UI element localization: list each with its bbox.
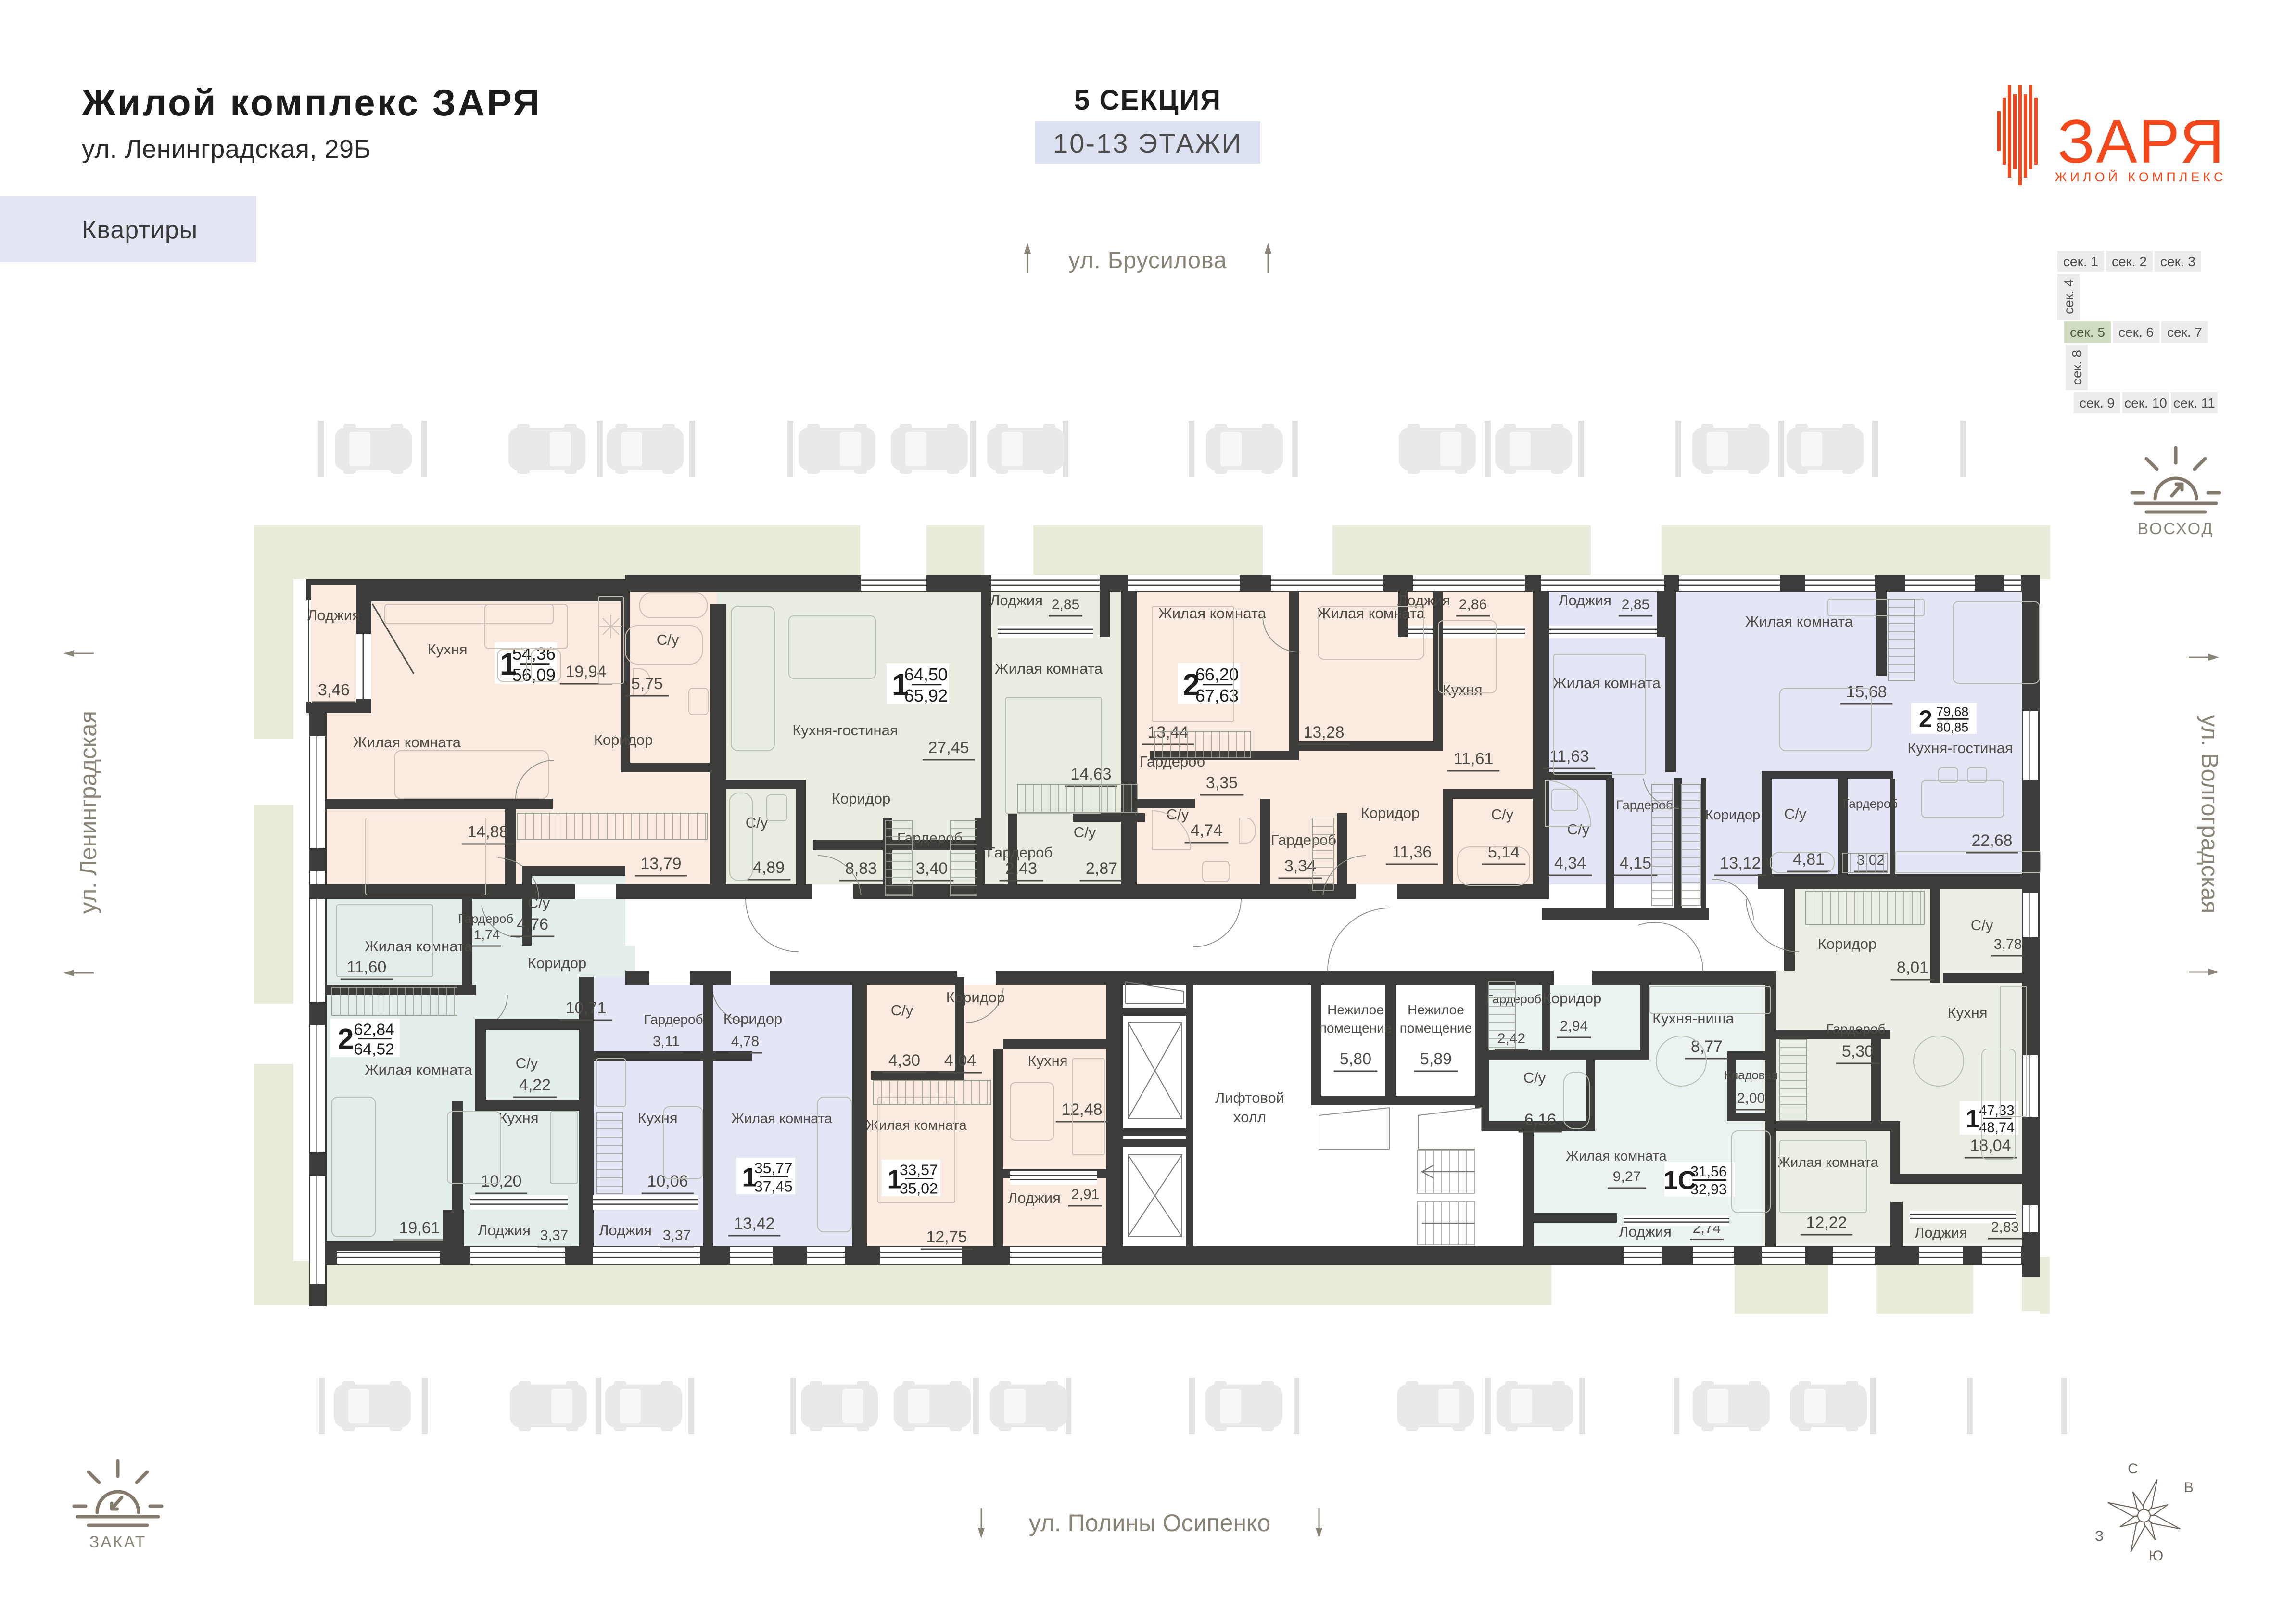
svg-text:66,20: 66,20 (1195, 665, 1239, 684)
svg-text:Коридор: Коридор (946, 989, 1005, 1006)
svg-text:2,86: 2,86 (1459, 597, 1487, 613)
svg-text:3,78: 3,78 (1994, 936, 2022, 952)
svg-text:Нежилое: Нежилое (1327, 1002, 1384, 1017)
svg-text:67,63: 67,63 (1195, 686, 1239, 705)
svg-text:Кухня-гостиная: Кухня-гостиная (1907, 740, 2013, 756)
svg-text:Жилая комната: Жилая комната (1566, 1149, 1667, 1164)
svg-text:14,88: 14,88 (467, 823, 508, 841)
svg-text:5,80: 5,80 (1340, 1050, 1371, 1068)
svg-text:Жилая комната: Жилая комната (995, 660, 1103, 677)
svg-text:27,45: 27,45 (928, 739, 969, 757)
svg-text:10-13 ЭТАЖИ: 10-13 ЭТАЖИ (1053, 128, 1243, 158)
svg-text:Гардероб: Гардероб (1843, 796, 1898, 811)
svg-text:3,02: 3,02 (1857, 852, 1885, 868)
svg-text:14,63: 14,63 (1070, 765, 1111, 783)
svg-text:С/у: С/у (528, 895, 550, 911)
svg-text:ул. Ленинградская, 29Б: ул. Ленинградская, 29Б (82, 135, 371, 164)
svg-text:Жилая комната: Жилая комната (365, 1061, 473, 1078)
svg-text:65,92: 65,92 (904, 686, 948, 705)
svg-text:С/у: С/у (516, 1055, 538, 1072)
svg-text:Коридор: Коридор (1543, 990, 1601, 1007)
svg-text:Жилая комната: Жилая комната (1158, 605, 1267, 622)
svg-text:Жилая комната: Жилая комната (1317, 605, 1425, 622)
svg-text:48,74: 48,74 (1979, 1120, 2015, 1136)
svg-text:11,63: 11,63 (1549, 747, 1589, 766)
svg-text:4,78: 4,78 (731, 1034, 759, 1049)
svg-text:С: С (2128, 1461, 2138, 1477)
svg-text:37,45: 37,45 (754, 1178, 793, 1195)
svg-text:2,43: 2,43 (1005, 859, 1037, 878)
svg-text:12,48: 12,48 (1061, 1100, 1102, 1119)
svg-text:Лоджия: Лоджия (307, 607, 360, 624)
svg-text:Жилая комната: Жилая комната (365, 938, 473, 955)
svg-text:С/у: С/у (1971, 917, 1993, 933)
svg-text:1: 1 (1966, 1105, 1979, 1133)
svg-text:Лоджия: Лоджия (990, 592, 1043, 609)
svg-text:18,04: 18,04 (1970, 1137, 2011, 1155)
svg-text:С/у: С/у (657, 631, 679, 648)
svg-text:4,74: 4,74 (1191, 821, 1222, 840)
svg-text:Лоджия: Лоджия (478, 1222, 531, 1239)
svg-text:С/у: С/у (1491, 806, 1514, 823)
svg-text:С/у: С/у (1523, 1069, 1546, 1086)
svg-text:6,16: 6,16 (1524, 1111, 1556, 1129)
svg-text:2,91: 2,91 (1071, 1187, 1099, 1202)
svg-text:Коридор: Коридор (723, 1010, 782, 1027)
svg-text:54,36: 54,36 (512, 644, 556, 664)
svg-text:15,68: 15,68 (1846, 683, 1887, 701)
svg-text:2,85: 2,85 (1052, 597, 1079, 613)
svg-text:62,84: 62,84 (354, 1021, 394, 1039)
svg-text:19,94: 19,94 (565, 663, 606, 681)
svg-text:3,37: 3,37 (540, 1228, 568, 1243)
svg-text:4,34: 4,34 (1554, 854, 1586, 872)
svg-text:13,44: 13,44 (1147, 723, 1188, 742)
svg-text:11,36: 11,36 (1392, 843, 1432, 861)
svg-text:12,75: 12,75 (926, 1228, 967, 1246)
svg-text:ЗАРЯ: ЗАРЯ (2057, 107, 2226, 176)
svg-text:4,30: 4,30 (888, 1051, 920, 1070)
svg-text:35,77: 35,77 (754, 1159, 793, 1176)
svg-text:сек. 11: сек. 11 (2173, 396, 2215, 410)
svg-text:13,42: 13,42 (734, 1215, 774, 1233)
svg-text:сек. 7: сек. 7 (2167, 325, 2202, 340)
svg-text:5 СЕКЦИЯ: 5 СЕКЦИЯ (1074, 85, 1221, 116)
svg-text:3,46: 3,46 (318, 681, 350, 699)
svg-text:Гардероб: Гардероб (458, 911, 513, 926)
svg-text:Гардероб: Гардероб (987, 844, 1053, 861)
svg-text:Кладовая: Кладовая (1724, 1069, 1778, 1082)
svg-text:Гардероб: Гардероб (1616, 798, 1674, 812)
svg-text:10,71: 10,71 (565, 999, 606, 1017)
svg-text:2,87: 2,87 (1086, 859, 1117, 878)
svg-text:сек. 8: сек. 8 (2069, 350, 2084, 385)
svg-text:Лоджия: Лоджия (1559, 592, 1611, 609)
svg-text:5,89: 5,89 (1420, 1050, 1452, 1068)
svg-text:12,22: 12,22 (1806, 1214, 1847, 1232)
svg-text:сек. 3: сек. 3 (2160, 254, 2195, 269)
svg-text:Жилой комплекс ЗАРЯ: Жилой комплекс ЗАРЯ (81, 81, 542, 124)
svg-text:Лоджия: Лоджия (1915, 1224, 1967, 1241)
svg-text:31,56: 31,56 (1690, 1164, 1727, 1180)
svg-text:Лоджия: Лоджия (599, 1222, 652, 1239)
svg-text:Гардероб: Гардероб (1486, 992, 1541, 1006)
svg-text:2,83: 2,83 (1991, 1219, 2019, 1235)
svg-text:ул. Ленинградская: ул. Ленинградская (76, 711, 101, 914)
svg-text:помещение: помещение (1400, 1021, 1472, 1036)
svg-text:Жилая комната: Жилая комната (353, 734, 461, 751)
svg-text:79,68: 79,68 (1936, 704, 1968, 719)
svg-text:4,15: 4,15 (1620, 854, 1651, 872)
svg-text:3,40: 3,40 (916, 859, 948, 878)
svg-text:С/у: С/у (1784, 806, 1807, 822)
svg-text:3,34: 3,34 (1284, 857, 1316, 875)
svg-text:Жилая комната: Жилая комната (1777, 1155, 1878, 1170)
svg-text:Кухня: Кухня (1028, 1052, 1068, 1069)
svg-text:13,79: 13,79 (640, 855, 681, 873)
svg-text:Гардероб: Гардероб (897, 830, 963, 846)
svg-text:Лоджия: Лоджия (1008, 1189, 1061, 1206)
svg-text:4,04: 4,04 (944, 1051, 976, 1070)
svg-text:5,75: 5,75 (631, 675, 663, 693)
svg-text:Коридор: Коридор (1818, 935, 1877, 952)
svg-text:9,27: 9,27 (1613, 1169, 1641, 1185)
svg-text:сек. 5: сек. 5 (2070, 325, 2105, 340)
svg-text:2,94: 2,94 (1560, 1018, 1588, 1034)
svg-text:64,52: 64,52 (354, 1040, 394, 1058)
svg-text:8,83: 8,83 (845, 859, 877, 878)
svg-text:Кухня: Кухня (1948, 1004, 1988, 1021)
svg-text:Кухня: Кухня (428, 641, 468, 658)
svg-text:4,89: 4,89 (753, 858, 785, 877)
svg-text:8,01: 8,01 (1897, 959, 1928, 977)
svg-text:11,60: 11,60 (347, 958, 387, 976)
svg-text:13,12: 13,12 (1720, 854, 1761, 872)
svg-text:помещение: помещение (1319, 1021, 1392, 1036)
svg-text:холл: холл (1233, 1109, 1266, 1125)
svg-text:Нежилое: Нежилое (1408, 1002, 1464, 1017)
svg-text:10,20: 10,20 (481, 1172, 521, 1190)
svg-text:64,50: 64,50 (904, 665, 948, 684)
svg-text:3,11: 3,11 (653, 1034, 680, 1049)
svg-text:2: 2 (338, 1023, 354, 1055)
svg-text:Кухня: Кухня (499, 1110, 539, 1126)
svg-text:80,85: 80,85 (1936, 720, 1968, 735)
svg-text:Кухня: Кухня (638, 1110, 678, 1126)
svg-text:Коридор: Коридор (528, 955, 586, 972)
svg-text:ЗАКАТ: ЗАКАТ (89, 1533, 147, 1551)
svg-text:33,57: 33,57 (900, 1161, 938, 1178)
svg-text:Коридор: Коридор (832, 790, 890, 807)
svg-text:4,22: 4,22 (519, 1076, 551, 1094)
svg-text:сек. 1: сек. 1 (2063, 254, 2098, 269)
svg-text:сек. 6: сек. 6 (2118, 325, 2154, 340)
svg-text:4,76: 4,76 (517, 915, 548, 933)
svg-text:11,61: 11,61 (1454, 750, 1494, 768)
svg-text:5,14: 5,14 (1488, 843, 1520, 861)
svg-text:Коридор: Коридор (1361, 805, 1420, 821)
svg-text:Гардероб: Гардероб (1826, 1022, 1885, 1036)
svg-text:Кухня-ниша: Кухня-ниша (1652, 1010, 1735, 1027)
svg-text:ул. Брусилова: ул. Брусилова (1068, 248, 1227, 273)
svg-text:3,37: 3,37 (663, 1228, 691, 1243)
svg-text:сек. 4: сек. 4 (2061, 279, 2076, 314)
svg-text:3,35: 3,35 (1206, 774, 1238, 792)
svg-text:Коридор: Коридор (594, 731, 653, 748)
svg-text:сек. 9: сек. 9 (2080, 396, 2115, 410)
svg-text:10,06: 10,06 (647, 1172, 688, 1190)
svg-text:35,02: 35,02 (900, 1180, 938, 1197)
svg-text:Лифтовой: Лифтовой (1215, 1089, 1284, 1106)
svg-text:2,85: 2,85 (1622, 597, 1649, 613)
svg-text:5,30: 5,30 (1842, 1042, 1874, 1061)
svg-text:Ю: Ю (2149, 1548, 2163, 1564)
svg-text:С/у: С/у (1074, 824, 1096, 841)
svg-text:В: В (2184, 1480, 2194, 1496)
svg-text:сек. 10: сек. 10 (2124, 396, 2167, 410)
svg-text:ВОСХОД: ВОСХОД (2138, 520, 2214, 538)
svg-text:С/у: С/у (746, 814, 768, 831)
svg-text:С/у: С/у (891, 1002, 913, 1019)
svg-text:1,74: 1,74 (474, 927, 500, 942)
svg-text:сек. 2: сек. 2 (2112, 254, 2147, 269)
svg-text:Квартиры: Квартиры (82, 216, 198, 244)
svg-text:22,68: 22,68 (1971, 831, 2012, 850)
svg-text:Жилая комната: Жилая комната (866, 1118, 967, 1133)
svg-text:С/у: С/у (1567, 821, 1590, 838)
svg-text:4,81: 4,81 (1793, 850, 1825, 869)
svg-text:ул. Волгоградская: ул. Волгоградская (2196, 715, 2222, 914)
svg-text:Кухня: Кухня (1443, 681, 1483, 698)
svg-text:ЖИЛОЙ КОМПЛЕКС: ЖИЛОЙ КОМПЛЕКС (2055, 169, 2227, 184)
svg-text:2: 2 (1919, 705, 1932, 732)
svg-text:19,61: 19,61 (399, 1219, 440, 1237)
svg-text:ул. Полины Осипенко: ул. Полины Осипенко (1029, 1509, 1271, 1536)
svg-text:Гардероб: Гардероб (644, 1012, 703, 1027)
svg-text:2,00: 2,00 (1737, 1090, 1765, 1106)
svg-text:Коридор: Коридор (1705, 807, 1761, 823)
svg-text:Кухня-гостиная: Кухня-гостиная (792, 722, 898, 739)
svg-text:32,93: 32,93 (1690, 1182, 1727, 1198)
svg-text:З: З (2095, 1528, 2104, 1544)
svg-text:13,28: 13,28 (1303, 723, 1344, 742)
